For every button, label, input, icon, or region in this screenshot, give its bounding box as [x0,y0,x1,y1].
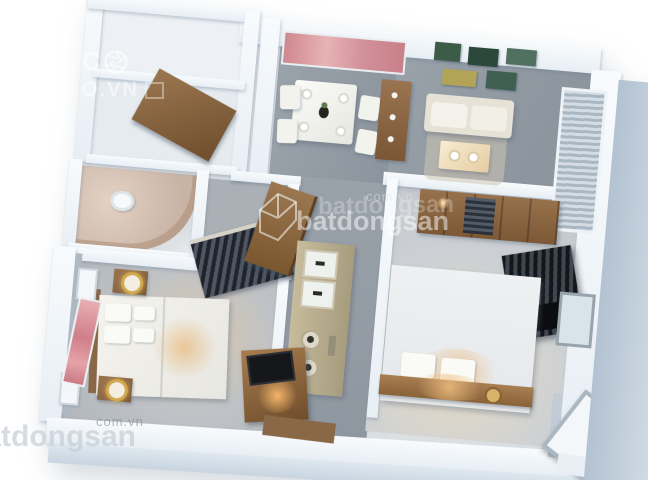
apartment-render [7,0,648,480]
wall-art-frame [486,70,517,91]
dining-table [290,80,357,145]
wall-art-frame [434,42,461,62]
centerpiece-vase [318,106,329,119]
plate [467,151,480,164]
sofa-cushion [470,105,508,132]
kitchen-sink [302,249,338,280]
pillow [105,303,132,322]
floorplan-render: C O.VN batdongsan batdongsan com.vn batd… [0,0,648,480]
monitor [246,350,295,385]
coffee-table [438,141,490,173]
plate [301,88,313,100]
plate [298,121,310,133]
louvered-wardrobe-door [463,197,496,235]
pillow [134,306,155,321]
bedroom2-window [555,291,596,348]
sofa [424,93,515,139]
plate [335,125,347,137]
bathroom-floor [72,165,199,255]
dining-chair [280,85,300,109]
wall-art-frame [442,68,477,87]
kitchen-utensil [328,336,337,357]
desk [241,347,309,422]
wall-art-frame [468,47,499,68]
wall-art-frame [506,48,537,67]
bottle [387,136,394,143]
bottle [389,114,396,121]
bottle [391,92,398,99]
plate [448,149,461,162]
plate [338,92,350,104]
pillow [104,325,131,344]
pillow [133,328,154,343]
sofa-cushion [430,102,468,129]
dining-chair [277,119,298,144]
kitchen-sink [300,279,336,310]
